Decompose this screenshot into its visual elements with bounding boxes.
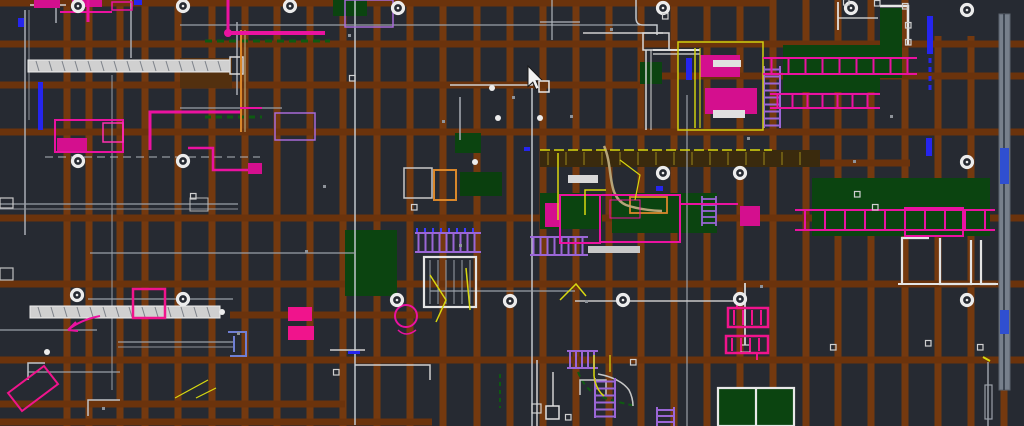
grid-row-line <box>0 401 345 408</box>
equipment-magenta-fill <box>545 203 559 227</box>
window-wall-blue <box>1000 310 1009 334</box>
fixture-center-dot <box>966 299 969 302</box>
marker-blue <box>686 58 692 80</box>
equipment-magenta-fill <box>248 163 262 174</box>
fixture-center-dot <box>182 160 185 163</box>
hatch-region-green <box>460 172 502 196</box>
hatch-region-green <box>333 0 367 16</box>
grid-row-line <box>0 82 640 89</box>
fixture-center-dot <box>76 294 79 297</box>
fixture-dot <box>44 349 50 355</box>
fixture-center-dot <box>182 5 185 8</box>
fixture-dot <box>495 115 501 121</box>
small-marker <box>459 244 462 247</box>
fixture-center-dot <box>397 7 400 10</box>
white-bar <box>588 246 640 253</box>
marker-blue <box>524 147 530 151</box>
small-marker <box>585 300 588 303</box>
equipment-pink-fill <box>288 307 312 321</box>
grid-row-line <box>0 281 1024 288</box>
hatch-region-green <box>783 45 880 92</box>
small-marker <box>305 250 308 253</box>
marker-blue <box>927 16 933 54</box>
grid-row-line <box>0 0 770 7</box>
small-marker <box>102 407 105 410</box>
marker-blue <box>926 138 932 156</box>
fixture-center-dot <box>966 161 969 164</box>
small-marker <box>853 160 856 163</box>
fixture-dot <box>472 159 478 165</box>
marker-blue <box>656 186 663 191</box>
hvac-duct <box>30 306 220 318</box>
fixture-dot <box>489 85 495 91</box>
small-marker <box>512 96 515 99</box>
grid-row-line <box>0 357 1024 364</box>
fixture-center-dot <box>662 7 665 10</box>
small-marker <box>747 137 750 140</box>
label-bar-white <box>713 60 741 67</box>
fixture-center-dot <box>396 299 399 302</box>
small-marker <box>237 332 240 335</box>
small-marker <box>323 185 326 188</box>
small-marker <box>610 28 613 31</box>
small-marker <box>442 120 445 123</box>
drawing-surface[interactable] <box>0 0 1024 426</box>
fixture-center-dot <box>850 7 853 10</box>
marker-blue <box>38 82 43 130</box>
fixture-center-dot <box>662 172 665 175</box>
equipment-magenta-fill <box>34 0 60 8</box>
marker-blue <box>134 0 142 5</box>
fixture-center-dot <box>966 9 969 12</box>
fixture-center-dot <box>622 299 625 302</box>
equipment-magenta-fill <box>57 138 87 151</box>
marker-blue <box>18 18 24 27</box>
fixture-center-dot <box>77 5 80 8</box>
label-bar-white <box>713 110 745 118</box>
small-marker <box>890 115 893 118</box>
hatch-region-green <box>345 230 397 296</box>
white-bar <box>568 175 598 183</box>
hatch-region-green <box>455 133 481 153</box>
pipe-node <box>224 29 232 37</box>
fixture-center-dot <box>77 160 80 163</box>
fixture-center-dot <box>739 298 742 301</box>
grid-row-line <box>230 312 432 319</box>
marker-blue <box>348 351 360 354</box>
window-wall-blue <box>1000 148 1009 184</box>
cad-drawing-viewport[interactable] <box>0 0 1024 426</box>
fixture-center-dot <box>182 298 185 301</box>
fixture-center-dot <box>289 5 292 8</box>
equipment-pink-fill <box>288 326 314 340</box>
fixture-dot <box>219 309 225 315</box>
grid-row-line <box>0 419 432 426</box>
grid-row-line <box>0 129 1024 136</box>
fixture-dot <box>537 115 543 121</box>
equipment-band-maroon <box>540 150 820 167</box>
equipment-magenta-fill <box>740 206 760 226</box>
fixture-center-dot <box>739 172 742 175</box>
small-marker <box>760 285 763 288</box>
small-marker <box>348 34 351 37</box>
fixture-center-dot <box>509 300 512 303</box>
small-marker <box>570 115 573 118</box>
